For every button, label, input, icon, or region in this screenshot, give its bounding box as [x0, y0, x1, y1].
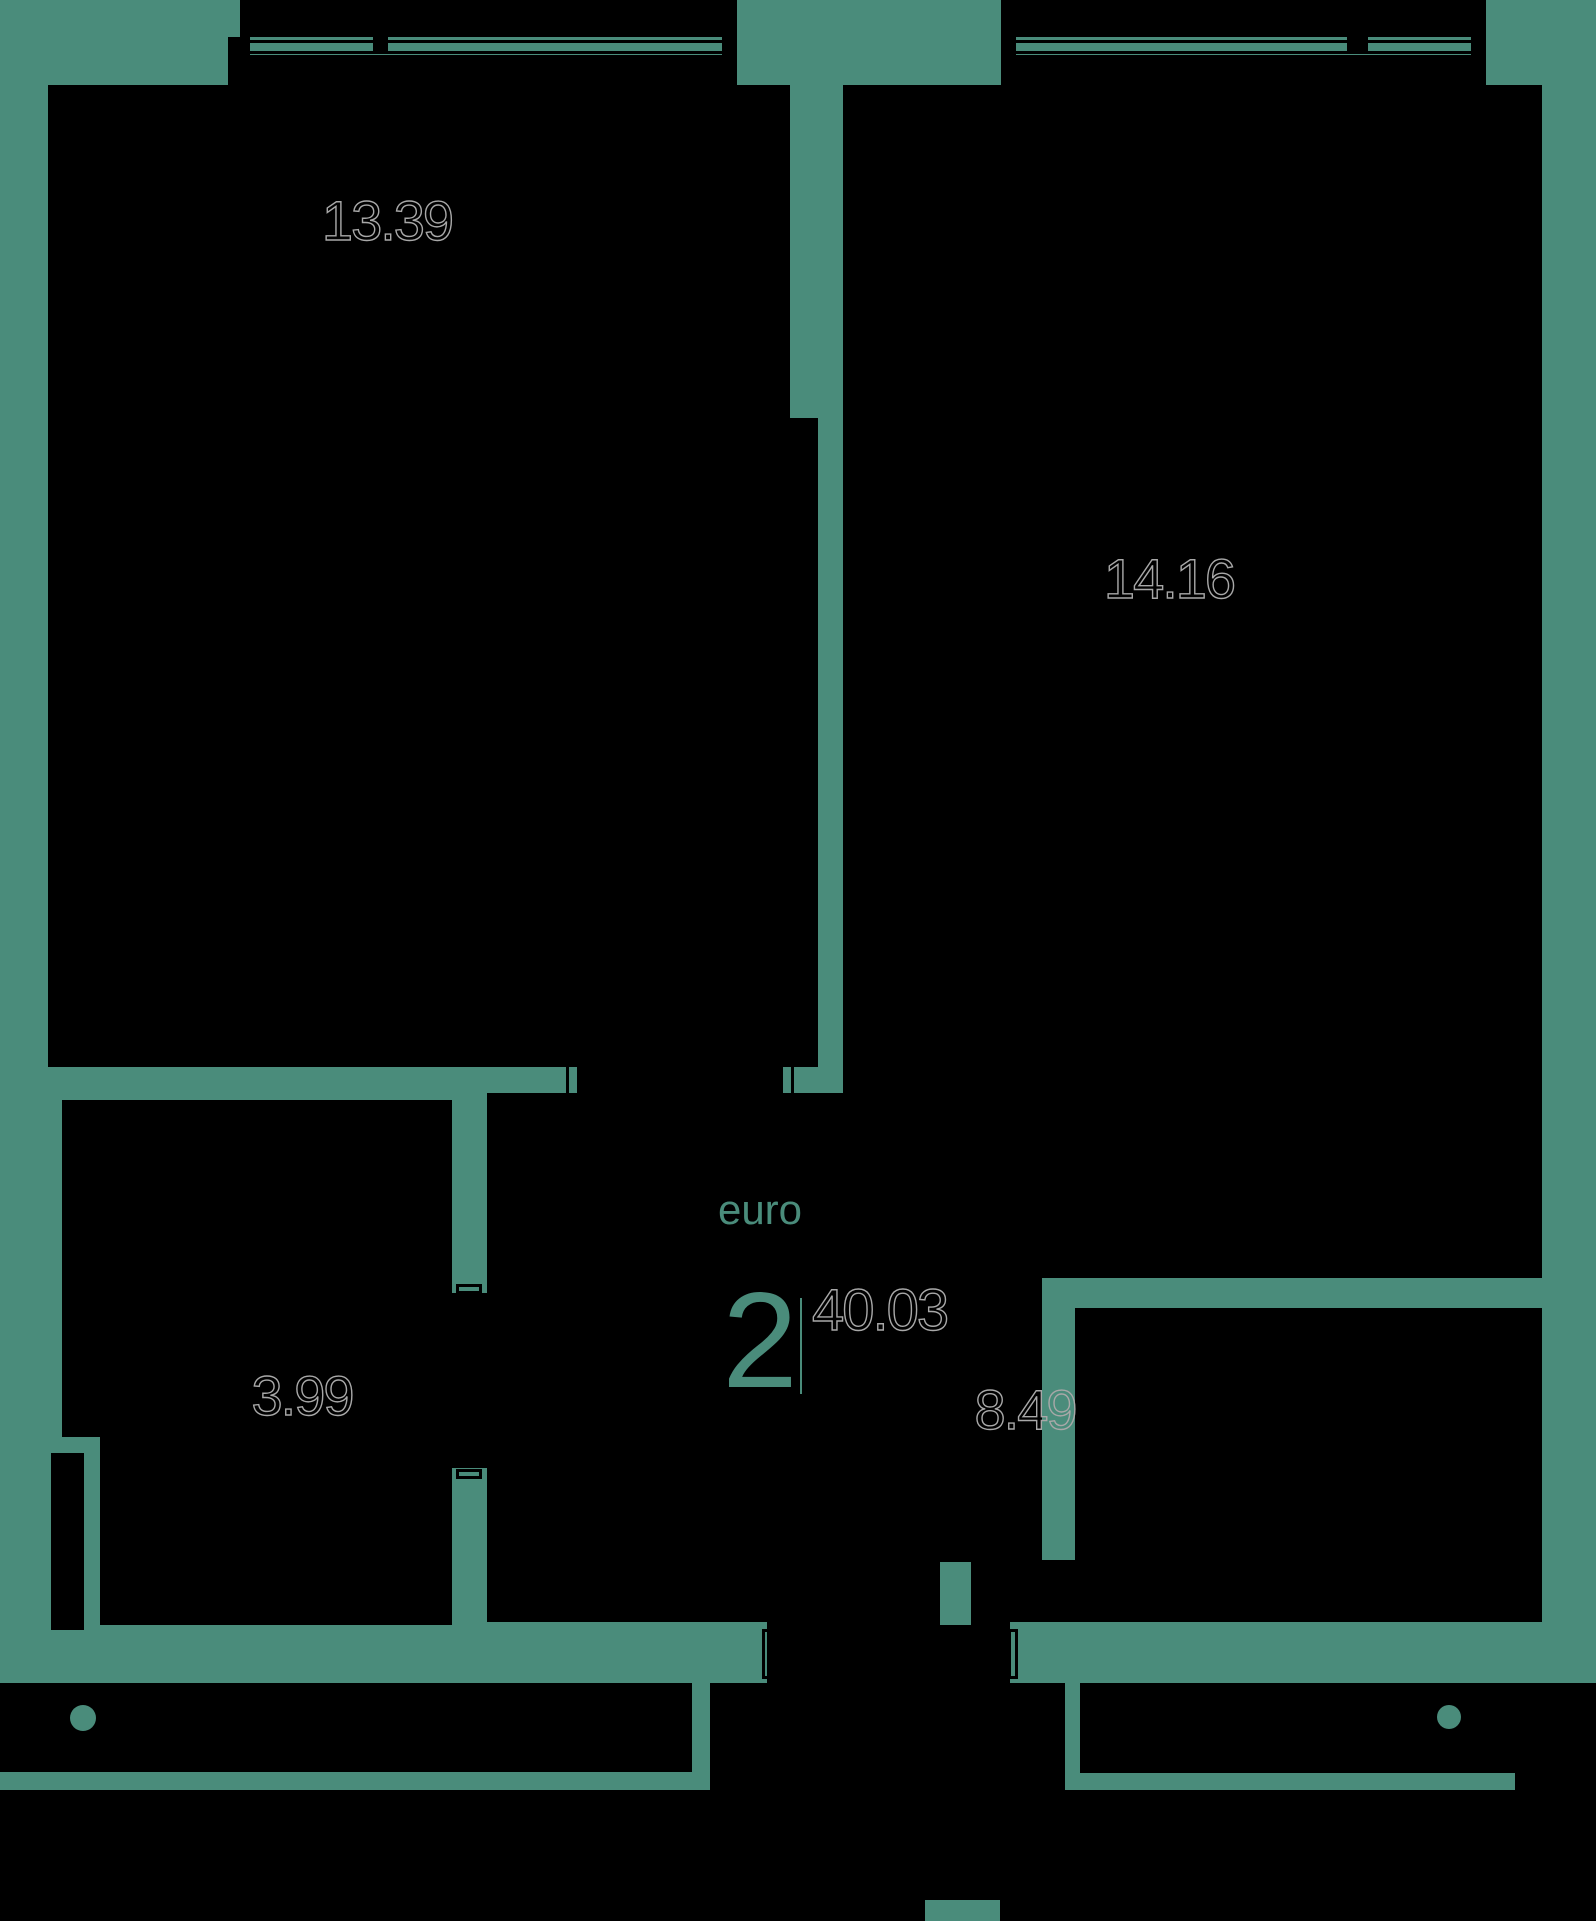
apartment-type-label: euro	[700, 1186, 820, 1234]
caption-divider	[800, 1298, 802, 1394]
terrace-right-column-icon	[1437, 1705, 1461, 1729]
terrace-right-slab	[1080, 1683, 1596, 1773]
room-top-left-window-strip	[233, 55, 737, 85]
bathroom-jamb-top-icon	[456, 1284, 482, 1294]
room-top-left-area-text: 13.39	[322, 189, 452, 252]
window-left-glass-line-icon	[250, 40, 722, 43]
hallway-niche-connector	[1042, 1560, 1075, 1622]
rooms-count-label: 2	[700, 1272, 820, 1408]
window-right-frame-right-icon	[1471, 37, 1486, 55]
hallway-area-text: 8.49	[975, 1378, 1076, 1441]
window-right-glass-line-icon	[1016, 40, 1471, 43]
total-area-label: 40.03	[806, 1268, 1046, 1343]
room-top-left-floor-ext	[790, 418, 818, 1067]
window-left-glass-line2-icon	[250, 51, 722, 54]
bathroom-jamb-bottom-icon	[456, 1469, 482, 1479]
room-bottom-left-area-text: 3.99	[252, 1364, 353, 1427]
terrace-exit-jamb-right-icon	[1008, 1629, 1018, 1679]
porch-slab	[710, 1683, 1065, 1790]
window-left-frame-right-icon	[722, 37, 737, 55]
floor-plan: 13.39 14.16 3.99 8.49 40.03 euro 2	[0, 0, 1596, 1921]
hallway-niche-floor	[1075, 1308, 1542, 1622]
room-top-right-window-strip	[1001, 55, 1486, 85]
room-top-right-area-text: 14.16	[1104, 547, 1234, 610]
bottom-edge-slab	[0, 1790, 1596, 1921]
window-left-mullion-icon	[373, 33, 388, 53]
window-right-bar-icon	[1001, 0, 1486, 37]
terrace-left-slab	[0, 1683, 692, 1772]
window-right-frame-left-icon	[1001, 37, 1016, 55]
total-area-text: 40.03	[812, 1278, 947, 1343]
room-top-left-area-label: 13.39	[287, 180, 487, 250]
bottom-walkway-notch	[925, 1900, 1000, 1921]
terrace-exit-opening	[767, 1622, 1010, 1683]
terrace-right-connector	[1515, 1773, 1596, 1790]
bathroom-door-opening	[452, 1293, 487, 1468]
window-right-glass-line2-icon	[1016, 51, 1471, 54]
doorway-opening	[578, 1067, 783, 1093]
window-right-mullion-icon	[1347, 33, 1368, 53]
window-left-frame-left-icon	[233, 37, 250, 55]
hallway-area-label: 8.49	[925, 1369, 1125, 1439]
room-bottom-left-area-label: 3.99	[202, 1355, 402, 1425]
window-left-bar-icon	[240, 0, 737, 37]
entrance-door-leaf-icon	[51, 1453, 84, 1630]
terrace-exit-jamb-left-icon	[762, 1629, 772, 1679]
terrace-left-column-icon	[70, 1705, 96, 1731]
terrace-exit-wall-stub	[940, 1562, 971, 1625]
room-top-right-area-label: 14.16	[1069, 538, 1269, 608]
